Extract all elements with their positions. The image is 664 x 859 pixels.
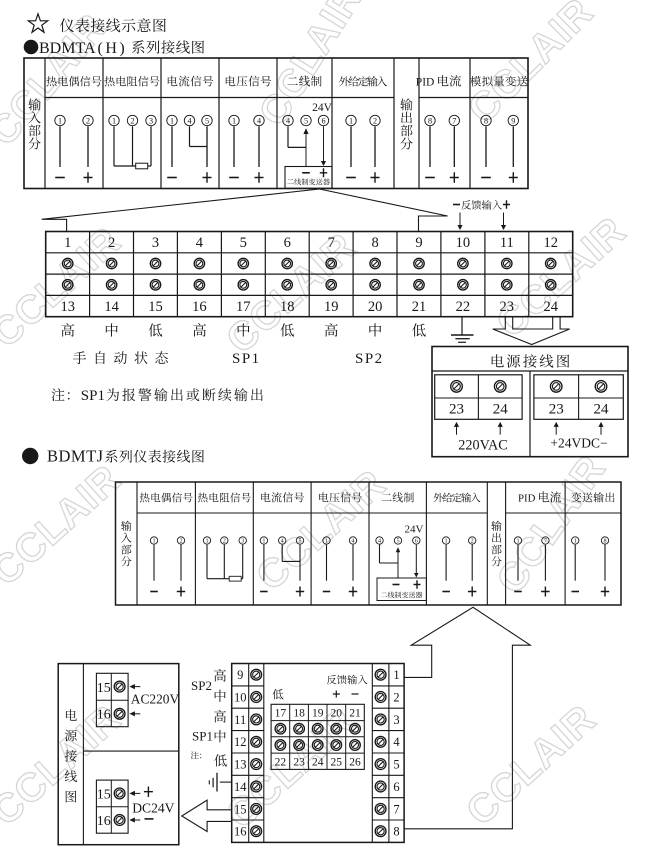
svg-text:16: 16 bbox=[192, 299, 207, 315]
svg-text:15: 15 bbox=[97, 788, 111, 803]
svg-text:SP2: SP2 bbox=[191, 678, 212, 693]
svg-text:19: 19 bbox=[312, 708, 324, 720]
svg-text:BDMTJ: BDMTJ bbox=[47, 447, 104, 466]
svg-text:4: 4 bbox=[196, 235, 204, 251]
svg-text:16: 16 bbox=[97, 814, 111, 829]
svg-text:22: 22 bbox=[275, 756, 287, 768]
svg-text:6: 6 bbox=[393, 780, 399, 794]
svg-text:12: 12 bbox=[543, 235, 558, 251]
svg-text:4: 4 bbox=[281, 538, 284, 545]
svg-text:8: 8 bbox=[484, 116, 488, 125]
svg-text:7: 7 bbox=[452, 116, 456, 125]
svg-text:8: 8 bbox=[371, 235, 378, 251]
svg-text:2: 2 bbox=[373, 116, 377, 125]
svg-text:1: 1 bbox=[205, 538, 208, 545]
svg-text:25: 25 bbox=[331, 756, 343, 768]
svg-text:22: 22 bbox=[456, 299, 471, 315]
svg-text:5: 5 bbox=[396, 538, 399, 545]
svg-text:14: 14 bbox=[104, 299, 119, 315]
svg-text:220VAC: 220VAC bbox=[458, 437, 507, 453]
svg-text:10: 10 bbox=[456, 235, 471, 251]
svg-text:11: 11 bbox=[500, 235, 514, 251]
svg-text:24V: 24V bbox=[405, 524, 424, 536]
svg-text:18: 18 bbox=[280, 299, 295, 315]
svg-text:2: 2 bbox=[86, 116, 90, 125]
svg-text:9: 9 bbox=[415, 235, 422, 251]
svg-text:1: 1 bbox=[58, 116, 62, 125]
svg-text:3: 3 bbox=[241, 538, 244, 545]
svg-text:12: 12 bbox=[234, 735, 247, 749]
svg-text:7: 7 bbox=[393, 802, 399, 816]
svg-text:5: 5 bbox=[298, 538, 301, 545]
svg-text:SP1: SP1 bbox=[232, 351, 261, 367]
svg-text:PID: PID bbox=[416, 77, 435, 89]
svg-text:DC24V: DC24V bbox=[132, 801, 174, 816]
svg-text:1: 1 bbox=[325, 538, 328, 545]
svg-text:2: 2 bbox=[179, 538, 182, 545]
svg-text:1: 1 bbox=[516, 538, 519, 545]
svg-text:SP2: SP2 bbox=[355, 351, 384, 367]
svg-text:4: 4 bbox=[257, 116, 261, 125]
svg-text:26: 26 bbox=[349, 756, 361, 768]
svg-text:1: 1 bbox=[170, 116, 174, 125]
svg-text:1: 1 bbox=[64, 235, 71, 251]
svg-text:24: 24 bbox=[493, 402, 509, 418]
svg-text:9: 9 bbox=[237, 668, 243, 682]
svg-text:21: 21 bbox=[349, 708, 361, 720]
svg-text:23: 23 bbox=[549, 402, 564, 418]
svg-text:3: 3 bbox=[149, 116, 153, 125]
svg-text:7: 7 bbox=[544, 538, 547, 545]
svg-text:8: 8 bbox=[428, 116, 432, 125]
svg-text:11: 11 bbox=[234, 713, 246, 727]
svg-text:5: 5 bbox=[205, 116, 209, 125]
svg-text:4: 4 bbox=[393, 735, 400, 749]
svg-text:18: 18 bbox=[293, 708, 305, 720]
svg-text:20: 20 bbox=[368, 299, 383, 315]
svg-text:1: 1 bbox=[112, 116, 116, 125]
svg-text:5: 5 bbox=[240, 235, 247, 251]
svg-text:15: 15 bbox=[148, 299, 163, 315]
svg-text:23: 23 bbox=[449, 402, 464, 418]
svg-text:14: 14 bbox=[234, 780, 247, 794]
svg-text:20: 20 bbox=[331, 708, 343, 720]
svg-text:17: 17 bbox=[275, 708, 287, 720]
svg-text:10: 10 bbox=[234, 690, 247, 704]
svg-text:24: 24 bbox=[312, 756, 324, 768]
svg-text:2: 2 bbox=[223, 538, 226, 545]
svg-text:SP1: SP1 bbox=[81, 388, 105, 404]
svg-text:23: 23 bbox=[500, 299, 515, 315]
svg-text:16: 16 bbox=[97, 708, 111, 723]
svg-text:15: 15 bbox=[97, 681, 111, 696]
svg-text:1: 1 bbox=[393, 668, 399, 682]
svg-text:24V: 24V bbox=[312, 102, 333, 114]
svg-text:2: 2 bbox=[471, 538, 474, 545]
svg-text:21: 21 bbox=[412, 299, 427, 315]
svg-text:6: 6 bbox=[284, 235, 291, 251]
svg-text:+24VDC−: +24VDC− bbox=[550, 436, 607, 451]
svg-text:2: 2 bbox=[108, 235, 115, 251]
svg-text:5: 5 bbox=[304, 116, 308, 125]
svg-text:24: 24 bbox=[543, 299, 558, 315]
svg-text:PID: PID bbox=[518, 493, 536, 505]
svg-text:16: 16 bbox=[234, 825, 247, 839]
svg-text:8: 8 bbox=[603, 538, 606, 545]
svg-text:6: 6 bbox=[415, 538, 418, 545]
svg-text:17: 17 bbox=[236, 299, 251, 315]
svg-text:2: 2 bbox=[130, 116, 134, 125]
svg-text:3: 3 bbox=[152, 235, 159, 251]
svg-text:4: 4 bbox=[351, 538, 354, 545]
svg-text:5: 5 bbox=[393, 758, 399, 772]
svg-text:6: 6 bbox=[321, 116, 325, 125]
svg-text:24: 24 bbox=[594, 402, 610, 418]
svg-text:BDMTA: BDMTA bbox=[39, 40, 96, 57]
svg-text:(H): (H) bbox=[98, 40, 128, 57]
svg-text:8: 8 bbox=[393, 825, 399, 839]
svg-text:1: 1 bbox=[262, 538, 265, 545]
svg-text:SP1: SP1 bbox=[192, 729, 213, 744]
svg-text:15: 15 bbox=[234, 802, 247, 816]
svg-text:4: 4 bbox=[187, 116, 191, 125]
svg-text:1: 1 bbox=[232, 116, 236, 125]
svg-text:23: 23 bbox=[293, 756, 305, 768]
svg-text:2: 2 bbox=[393, 690, 399, 704]
svg-text:1: 1 bbox=[152, 538, 155, 545]
svg-text:4: 4 bbox=[378, 538, 381, 545]
svg-text:19: 19 bbox=[324, 299, 339, 315]
svg-text:AC220V: AC220V bbox=[131, 692, 180, 707]
svg-text:9: 9 bbox=[511, 116, 515, 125]
svg-text:1: 1 bbox=[574, 538, 577, 545]
svg-text:13: 13 bbox=[234, 758, 247, 772]
svg-text:7: 7 bbox=[328, 235, 335, 251]
svg-text:1: 1 bbox=[349, 116, 353, 125]
svg-text:3: 3 bbox=[393, 713, 399, 727]
svg-text:13: 13 bbox=[60, 299, 75, 315]
svg-text:1: 1 bbox=[445, 538, 448, 545]
svg-text:4: 4 bbox=[286, 116, 290, 125]
